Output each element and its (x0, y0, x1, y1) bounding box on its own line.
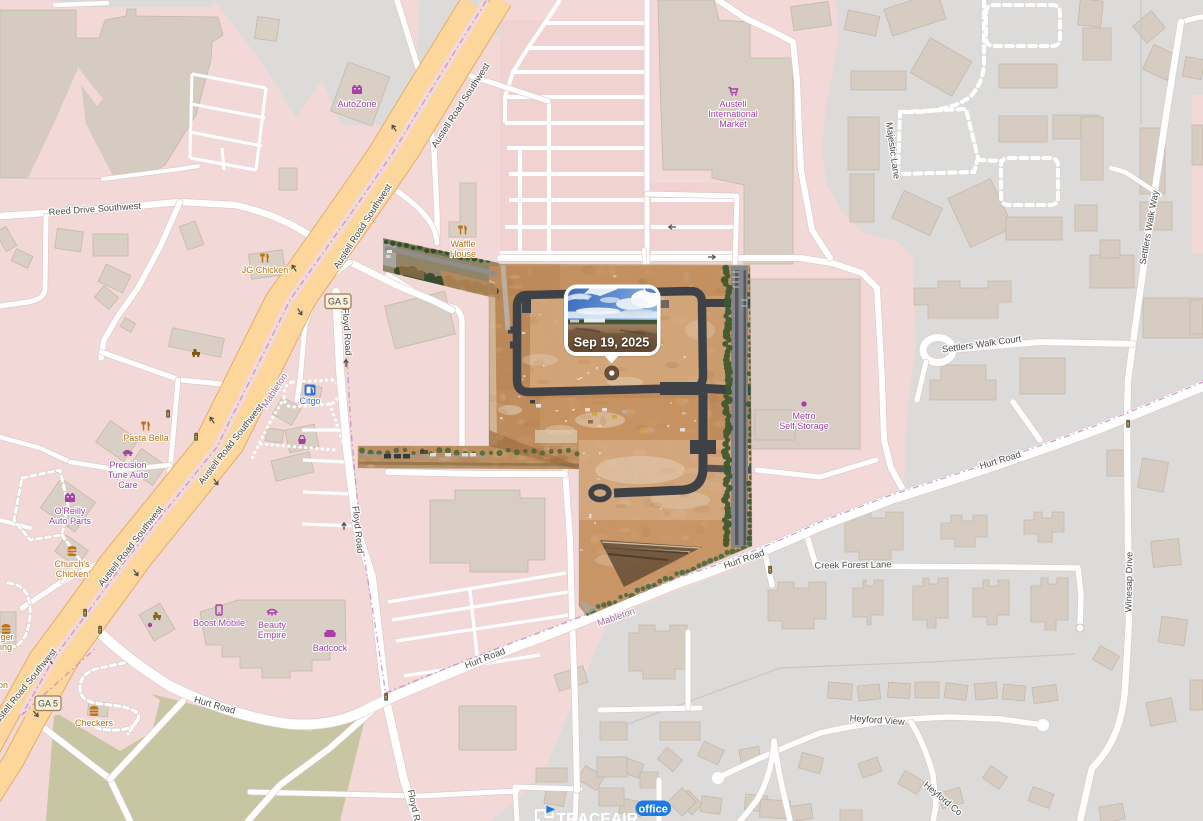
svg-text:Sep 19, 2025: Sep 19, 2025 (574, 336, 650, 350)
svg-text:office: office (639, 804, 668, 816)
svg-text:Checkers: Checkers (75, 718, 114, 728)
svg-text:Winesap Drive: Winesap Drive (1123, 552, 1134, 613)
svg-text:Waffle: Waffle (450, 239, 475, 249)
svg-text:JG Chicken: JG Chicken (242, 265, 289, 275)
svg-text:Empire: Empire (258, 630, 287, 640)
svg-text:Self Storage: Self Storage (779, 421, 829, 431)
svg-text:Boost Mobile: Boost Mobile (193, 618, 245, 628)
svg-text:House: House (450, 249, 476, 259)
svg-text:Care: Care (118, 480, 138, 490)
svg-text:AutoZone: AutoZone (337, 99, 376, 109)
svg-text:Auto Parts: Auto Parts (49, 516, 92, 526)
svg-text:agon: agon (0, 680, 8, 690)
svg-text:Metro: Metro (792, 411, 815, 421)
svg-text:GA 5: GA 5 (38, 699, 58, 709)
svg-text:International: International (708, 109, 758, 119)
svg-text:Chicken: Chicken (56, 569, 89, 579)
svg-text:O'Reilly: O'Reilly (55, 506, 86, 516)
svg-text:Creek Forest Lane: Creek Forest Lane (814, 559, 891, 570)
svg-text:King: King (0, 642, 12, 652)
svg-text:Badcock: Badcock (313, 643, 348, 653)
svg-text:Citgo: Citgo (299, 396, 320, 406)
svg-text:Beauty: Beauty (258, 620, 287, 630)
svg-text:Precision: Precision (109, 460, 146, 470)
svg-text:Austell: Austell (719, 99, 746, 109)
svg-text:urger: urger (0, 632, 14, 642)
svg-text:Tune Auto: Tune Auto (108, 470, 149, 480)
svg-text:TRACEAIR: TRACEAIR (557, 811, 639, 821)
svg-text:Church's: Church's (54, 559, 90, 569)
svg-text:GA 5: GA 5 (328, 297, 348, 307)
svg-text:Market: Market (719, 119, 747, 129)
svg-text:Pasta Bella: Pasta Bella (123, 433, 169, 443)
